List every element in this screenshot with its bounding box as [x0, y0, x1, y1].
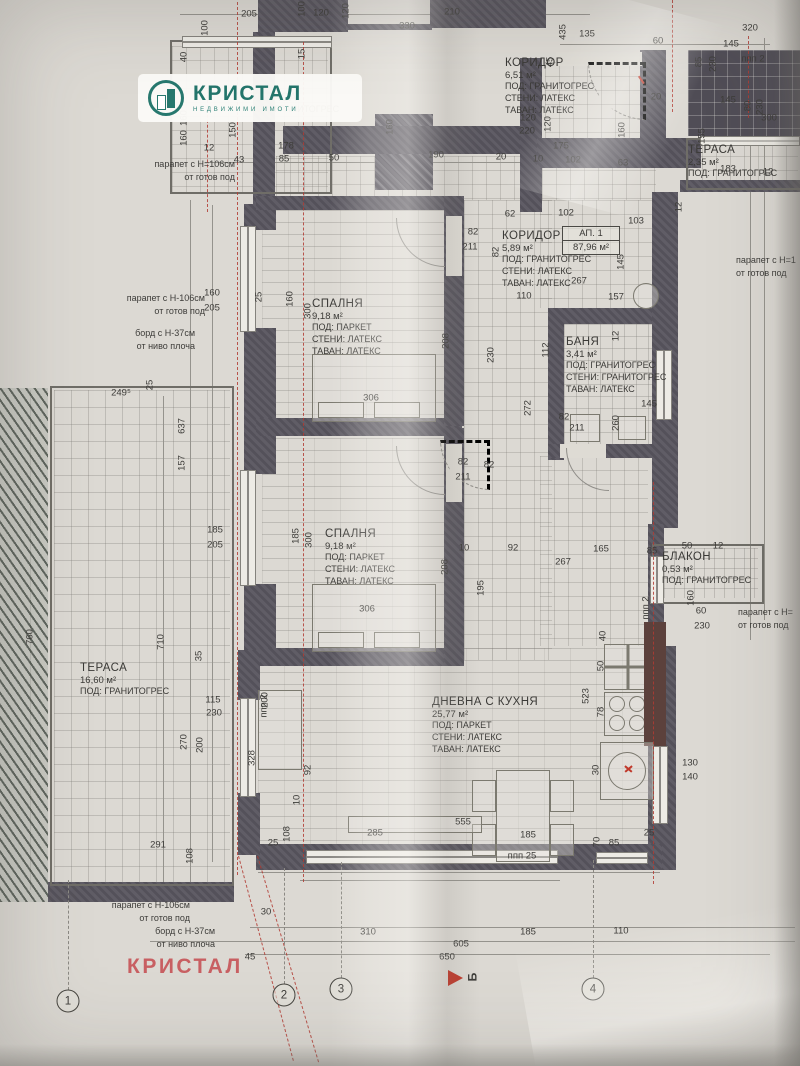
axis-bubbles-layer: 1234	[0, 0, 800, 1066]
apartment-area: 87,96 м²	[563, 241, 619, 254]
axis-bubble: 4	[582, 978, 605, 1001]
agency-name: КРИСТАЛ	[193, 83, 302, 104]
agency-tagline: НЕДВИЖИМИ ИМОТИ	[193, 107, 302, 113]
agency-logo: КРИСТАЛ НЕДВИЖИМИ ИМОТИ	[138, 74, 362, 122]
watermark: КРИСТАЛ	[127, 955, 243, 979]
section-arrow-icon	[448, 970, 463, 986]
axis-bubble: 2	[273, 984, 296, 1007]
apartment-number: АП. 1	[563, 227, 619, 241]
axis-bubble: 1	[57, 990, 80, 1013]
floor-plan-photo: 1004020510012012033021015435135453206014…	[0, 0, 800, 1066]
axis-bubble: 3	[330, 978, 353, 1001]
section-marker-label: Б	[465, 973, 479, 982]
apartment-tag: АП. 1 87,96 м²	[562, 226, 620, 255]
buildings-icon	[148, 80, 184, 116]
